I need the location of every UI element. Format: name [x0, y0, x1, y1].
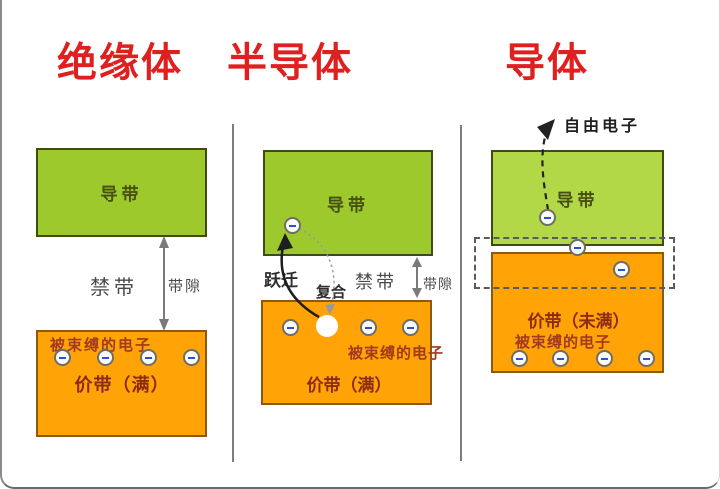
divider-insulator-semiconductor — [232, 124, 234, 462]
minus-icon — [557, 358, 564, 360]
semiconductor-recombination-label: 复合 — [316, 281, 346, 302]
electron-icon — [613, 261, 630, 278]
minus-icon — [365, 327, 372, 329]
insulator-valence-band-label: 价带（满） — [62, 371, 182, 397]
minus-icon — [59, 357, 66, 359]
conductor-conduction-band: 导带 — [491, 150, 664, 246]
electron-icon — [552, 350, 569, 367]
minus-icon — [601, 358, 608, 360]
semiconductor-title: 半导体 — [227, 30, 347, 88]
conductor-valence-band-label: 价带（未满） — [511, 307, 646, 332]
conductor-free-electron-label: 自由电子 — [564, 112, 640, 136]
electron-icon — [511, 350, 528, 367]
minus-icon — [574, 247, 581, 249]
insulator-conduction-band: 导带 — [36, 148, 207, 237]
minus-icon — [102, 357, 109, 359]
semiconductor-forbidden-band-label: 禁带 — [355, 268, 397, 294]
minus-icon — [516, 358, 523, 360]
electron-icon — [140, 349, 157, 366]
minus-icon — [643, 358, 650, 360]
minus-icon — [618, 269, 625, 271]
insulator-band-gap-label: 带隙 — [168, 275, 202, 296]
divider-semiconductor-conductor — [460, 125, 462, 461]
semiconductor-valence-band-label: 价带（满） — [299, 371, 399, 396]
electron-icon — [539, 209, 556, 226]
minus-icon — [407, 327, 414, 329]
electron-icon — [596, 350, 613, 367]
semiconductor-bandgap-arrow — [412, 257, 422, 298]
band-theory-diagram: 绝缘体 半导体 导体 导带 禁带 带隙 被束缚的电子 价带（满） 导带 跃迁 复… — [0, 0, 720, 489]
minus-icon — [188, 357, 195, 359]
insulator-title: 绝缘体 — [57, 30, 177, 88]
hole-icon — [316, 315, 338, 337]
semiconductor-band-gap-label: 带隙 — [423, 274, 453, 294]
semiconductor-transition-label: 跃迁 — [264, 266, 298, 291]
semiconductor-conduction-band: 导带 — [263, 150, 433, 256]
electron-icon — [284, 217, 301, 234]
insulator-conduction-band-label: 导带 — [101, 180, 143, 205]
electron-icon — [97, 349, 114, 366]
electron-icon — [54, 349, 71, 366]
electron-icon — [569, 239, 586, 256]
electron-icon — [183, 349, 200, 366]
minus-icon — [145, 357, 152, 359]
conductor-bound-electrons-label: 被束缚的电子 — [515, 331, 611, 352]
electron-icon — [282, 319, 299, 336]
semiconductor-bound-electrons-label: 被束缚的电子 — [348, 342, 444, 363]
electron-icon — [402, 319, 419, 336]
conductor-title: 导体 — [497, 30, 597, 88]
insulator-forbidden-band-label: 禁带 — [90, 271, 138, 300]
minus-icon — [544, 217, 551, 219]
electron-icon — [638, 350, 655, 367]
conductor-conduction-band-label: 导带 — [557, 186, 599, 211]
minus-icon — [289, 225, 296, 227]
semiconductor-conduction-band-label: 导带 — [327, 191, 369, 216]
electron-icon — [360, 319, 377, 336]
minus-icon — [287, 327, 294, 329]
